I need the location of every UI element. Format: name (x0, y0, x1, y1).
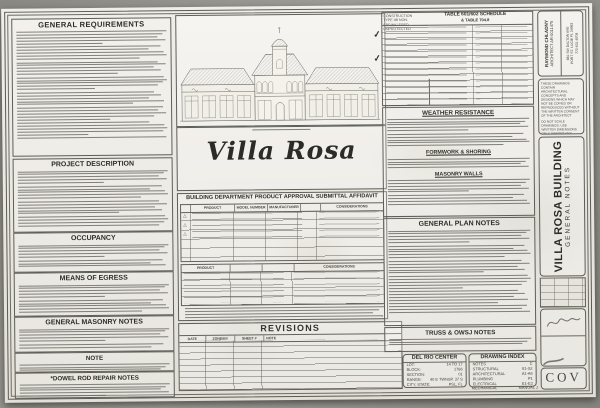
text-line (18, 212, 119, 214)
signature-divider-line (541, 335, 585, 336)
text-line (387, 117, 529, 119)
text-line (17, 70, 161, 72)
text-line (20, 383, 170, 385)
text-line (388, 191, 469, 193)
cell-text-smudge (192, 212, 302, 239)
checkmark-annotation: ✓ (373, 53, 382, 65)
copyright-paragraph-1: THESE DRAWINGS CONTAIN ARCHITECTURAL CON… (539, 79, 583, 119)
schedule-title-line2: & TABLE 704.8 (418, 17, 532, 23)
text-line (389, 260, 522, 262)
note-text-block (384, 155, 534, 168)
text-line (388, 203, 530, 205)
drawing-index-box: DRAWING INDEX NOTES C STRUCTURAL S1-S2 A… (468, 353, 536, 388)
table-601-602-schedule: CONSTRUCTION TYPE IIB NON-SPRINKLERED UN… (381, 11, 534, 106)
paper-sheet: GENERAL REQUIREMENTS PROJECT DESCRIPTION… (1, 3, 596, 403)
cell-text-smudge (294, 271, 380, 302)
text-line (388, 245, 524, 247)
text-line (17, 100, 164, 102)
text-line (18, 221, 164, 223)
text-line (18, 182, 104, 184)
text-line (19, 336, 168, 338)
text-line (388, 229, 530, 231)
sheet-title-main: VILLA ROSA BUILDING (552, 141, 565, 273)
text-line (17, 82, 163, 84)
text-line (17, 61, 158, 63)
sheet-title-rotated: VILLA ROSA BUILDING GENERAL NOTES (552, 141, 572, 273)
text-line (20, 363, 170, 365)
section-project-description: PROJECT DESCRIPTION (13, 157, 174, 233)
architect-license: ARCHITECT AR-0011475 (549, 20, 555, 67)
weather-formwork-masonry-panel: WEATHER RESISTANCE FORMWORK & SHORING MA… (382, 106, 535, 217)
affidavit-title: BUILDING DEPARTMENT PRODUCT APPROVAL SUB… (178, 192, 386, 202)
text-line (17, 64, 166, 66)
section-means-of-egress: MEANS OF EGRESS (14, 271, 174, 317)
drawing-index-rows: NOTES C STRUCTURAL S1-S2 ARCHITECTURAL A… (470, 362, 536, 387)
text-line (388, 253, 530, 255)
product-approval-table-1: PRODUCT MODEL NUMBER MANUFACTURER CONSID… (180, 202, 385, 262)
text-line (17, 57, 140, 59)
text-line (388, 163, 521, 165)
text-line (19, 340, 105, 342)
scanned-drawing-sheet: GENERAL REQUIREMENTS PROJECT DESCRIPTION… (0, 0, 600, 408)
text-line (389, 287, 463, 289)
text-line (388, 187, 529, 189)
text-line (20, 392, 169, 394)
text-line (389, 302, 498, 304)
text-line (18, 188, 150, 190)
text-line (17, 106, 163, 108)
copyright-paragraph-2: DO NOT SCALE DRAWINGS. USE WRITTEN DIMEN… (539, 119, 583, 134)
text-line (389, 296, 514, 298)
text-line (388, 157, 530, 159)
architect-stamp-box: RAYMOND CHLADNY ARCHITECT AR-0011475 881… (537, 10, 584, 76)
text-line (387, 130, 468, 132)
text-line (16, 36, 157, 38)
general-plan-notes-panel: GENERAL PLAN NOTES (383, 217, 536, 326)
text-line (16, 39, 165, 41)
text-line (388, 232, 526, 234)
text-line (389, 278, 531, 280)
building-elevation-drawing (177, 15, 382, 123)
revisions-panel: REVISIONS DATE ZONE/BY SHEET # NOTE (178, 321, 403, 391)
table-body: △ △ △ (181, 210, 383, 261)
architect-name-rotated: RAYMOND CHLADNY ARCHITECT AR-0011475 (544, 20, 555, 67)
sheet-title-sub: GENERAL NOTES (564, 141, 572, 273)
text-line (387, 136, 512, 138)
text-line (20, 366, 166, 368)
text-line (18, 200, 159, 202)
text-line (18, 191, 165, 193)
note-text-block (384, 177, 534, 205)
note-text-block (384, 227, 535, 313)
text-line (387, 123, 520, 125)
text-line (389, 340, 527, 342)
text-line (388, 185, 521, 187)
note-text-block (15, 326, 173, 349)
text-line (389, 256, 505, 258)
text-line (389, 337, 531, 339)
text-line (17, 54, 167, 56)
text-line (17, 51, 164, 53)
text-line (17, 79, 167, 81)
text-line (17, 134, 88, 136)
text-line (388, 248, 513, 250)
text-line (387, 133, 523, 135)
text-line (18, 224, 159, 226)
drawing-index-overflow-row: MECHANICAL MANUAL J (469, 386, 541, 392)
text-line (17, 127, 167, 129)
project-title: Villa Rosa (177, 137, 385, 164)
text-line (17, 118, 110, 120)
text-line (18, 247, 164, 249)
text-line (18, 215, 165, 217)
sheet-title-box: VILLA ROSA BUILDING GENERAL NOTES (538, 136, 585, 276)
text-line (20, 395, 106, 397)
text-line (387, 126, 528, 128)
text-line (17, 122, 149, 124)
text-line (387, 120, 525, 122)
warning-triangle-icon: △ (183, 214, 187, 219)
architect-address-rotated: 881 SW DALTON AVE PORT ST. LUCIE FL 3498… (565, 23, 579, 64)
affidavit-statement-text (181, 304, 389, 320)
text-line (16, 30, 166, 32)
note-text-block (15, 282, 173, 313)
section-dowel-rod-repair-notes: *DOWEL ROD REPAIR NOTES (15, 371, 175, 399)
text-line (19, 302, 151, 304)
site-info-box: DEL RIO CENTER LOT: 14 TO 17 BLOCK: 1786… (402, 353, 466, 388)
text-line (388, 200, 527, 202)
text-line (18, 252, 167, 254)
text-line (388, 241, 469, 243)
text-line (19, 299, 163, 301)
note-text-block (14, 242, 172, 267)
text-line (389, 290, 518, 292)
field-label: CITY, STATE: (407, 382, 431, 387)
text-line (18, 218, 168, 220)
copyright-note-box: THESE DRAWINGS CONTAIN ARCHITECTURAL CON… (538, 78, 585, 134)
text-line (18, 206, 155, 208)
note-text-block (383, 115, 533, 146)
text-line (17, 91, 154, 93)
text-line (19, 308, 169, 310)
text-line (16, 43, 102, 45)
text-line (19, 262, 151, 264)
text-line (389, 266, 518, 268)
text-line (19, 305, 166, 307)
text-line (389, 281, 527, 283)
text-line (19, 292, 168, 294)
text-line (17, 115, 154, 117)
field-value: PSL, FL (449, 382, 463, 387)
text-line (19, 284, 169, 286)
text-line (18, 197, 141, 199)
text-line (20, 386, 166, 388)
text-line (389, 293, 525, 295)
text-line (19, 287, 165, 289)
text-line (19, 259, 163, 261)
cell-text-smudge (384, 26, 467, 103)
text-line (18, 185, 162, 187)
text-line (388, 235, 521, 237)
text-line (18, 244, 168, 246)
note-text-block (14, 168, 173, 227)
text-line (19, 265, 166, 267)
text-line (17, 49, 149, 51)
text-line (388, 194, 524, 196)
section-general-requirements: GENERAL REQUIREMENTS (11, 17, 172, 157)
caption-text-line (252, 129, 310, 131)
text-line (18, 176, 159, 178)
sheet-numbers: MANUAL J (519, 386, 538, 391)
note-text-block (16, 381, 174, 397)
sheet-number-box: COV (541, 367, 587, 389)
text-line (389, 308, 522, 310)
section-general-masonry-notes: GENERAL MASONRY NOTES (14, 315, 174, 353)
text-line (388, 197, 513, 199)
product-approval-affidavit-panel: BUILDING DEPARTMENT PRODUCT APPROVAL SUB… (177, 191, 388, 321)
text-line (388, 250, 527, 252)
text-line (19, 256, 105, 258)
architect-name-cell: RAYMOND CHLADNY ARCHITECT AR-0011475 (538, 11, 562, 75)
text-line (388, 182, 526, 184)
text-line (18, 209, 162, 211)
cell-text-smudge (319, 211, 379, 238)
text-line (18, 250, 159, 252)
text-line (17, 88, 95, 90)
text-line (17, 85, 158, 87)
sheet-number: COV (542, 368, 586, 386)
site-info-row: CITY, STATE: PSL, FL (404, 382, 466, 388)
text-line (19, 346, 151, 348)
text-line (17, 94, 161, 96)
text-line (17, 112, 166, 114)
discipline-label: MECHANICAL (472, 386, 498, 391)
text-line (387, 138, 526, 140)
text-line (19, 311, 142, 313)
text-line (17, 124, 164, 126)
warning-triangle-icon: △ (183, 232, 187, 237)
text-line (18, 178, 167, 180)
text-line (387, 141, 529, 143)
text-line (17, 73, 118, 75)
project-title-panel: Villa Rosa (176, 125, 387, 191)
text-line (18, 173, 164, 175)
text-line (388, 166, 529, 168)
section-note: NOTE (14, 351, 174, 373)
table-body (182, 270, 384, 305)
text-line (185, 315, 383, 318)
signature-scribble (543, 312, 583, 332)
cell-text-smudge (184, 272, 284, 303)
text-line (18, 203, 167, 205)
note-text-block (16, 361, 174, 371)
text-line (17, 137, 166, 139)
text-line (16, 33, 162, 35)
text-line (389, 343, 522, 345)
text-line (389, 263, 530, 265)
product-approval-table-2: PRODUCT CONSIDERATIONS (181, 262, 385, 306)
text-line (19, 290, 160, 292)
text-line (389, 305, 527, 307)
pencil-mark (542, 356, 564, 366)
text-line (389, 268, 525, 270)
cell-text-smudge (475, 26, 528, 102)
warning-triangle-icon: △ (183, 223, 187, 228)
text-line (17, 130, 163, 132)
text-line (19, 343, 163, 345)
text-line (19, 328, 169, 330)
text-line (16, 46, 160, 48)
truss-owsj-notes-panel: TRUSS & OWSJ NOTES (384, 326, 536, 352)
text-line (388, 160, 526, 162)
site-info-rows: LOT: 14 TO 17 BLOCK: 1786 SECTION: 01 RA… (404, 362, 466, 387)
text-line (19, 296, 105, 298)
text-line (389, 284, 522, 286)
text-line (19, 331, 165, 333)
text-line (389, 299, 528, 301)
elevation-drawing-panel (175, 13, 386, 127)
text-line (17, 103, 133, 105)
text-line (18, 194, 168, 196)
architect-address-cell: 881 SW DALTON AVE PORT ST. LUCIE FL 3498… (561, 11, 583, 75)
text-line (389, 272, 484, 274)
text-line (388, 179, 530, 181)
text-line (389, 311, 530, 313)
text-line (17, 97, 149, 99)
text-line (18, 170, 168, 172)
revisions-empty-rows (179, 339, 401, 390)
revision-record-minitable (540, 277, 586, 307)
note-text-block (12, 28, 171, 139)
text-line (388, 238, 529, 240)
text-line (389, 275, 528, 277)
address-line2: PORT ST. LUCIE FL 34983 (570, 23, 575, 64)
text-line (387, 144, 503, 146)
text-line (20, 389, 161, 391)
checkmark-annotation: ✓ (373, 29, 382, 41)
section-occupancy: OCCUPANCY (13, 231, 173, 273)
text-line (17, 109, 158, 111)
schedule-body (382, 24, 533, 105)
text-line (19, 334, 160, 336)
text-line (17, 67, 154, 69)
text-line (17, 76, 164, 78)
note-text-block (385, 335, 535, 345)
